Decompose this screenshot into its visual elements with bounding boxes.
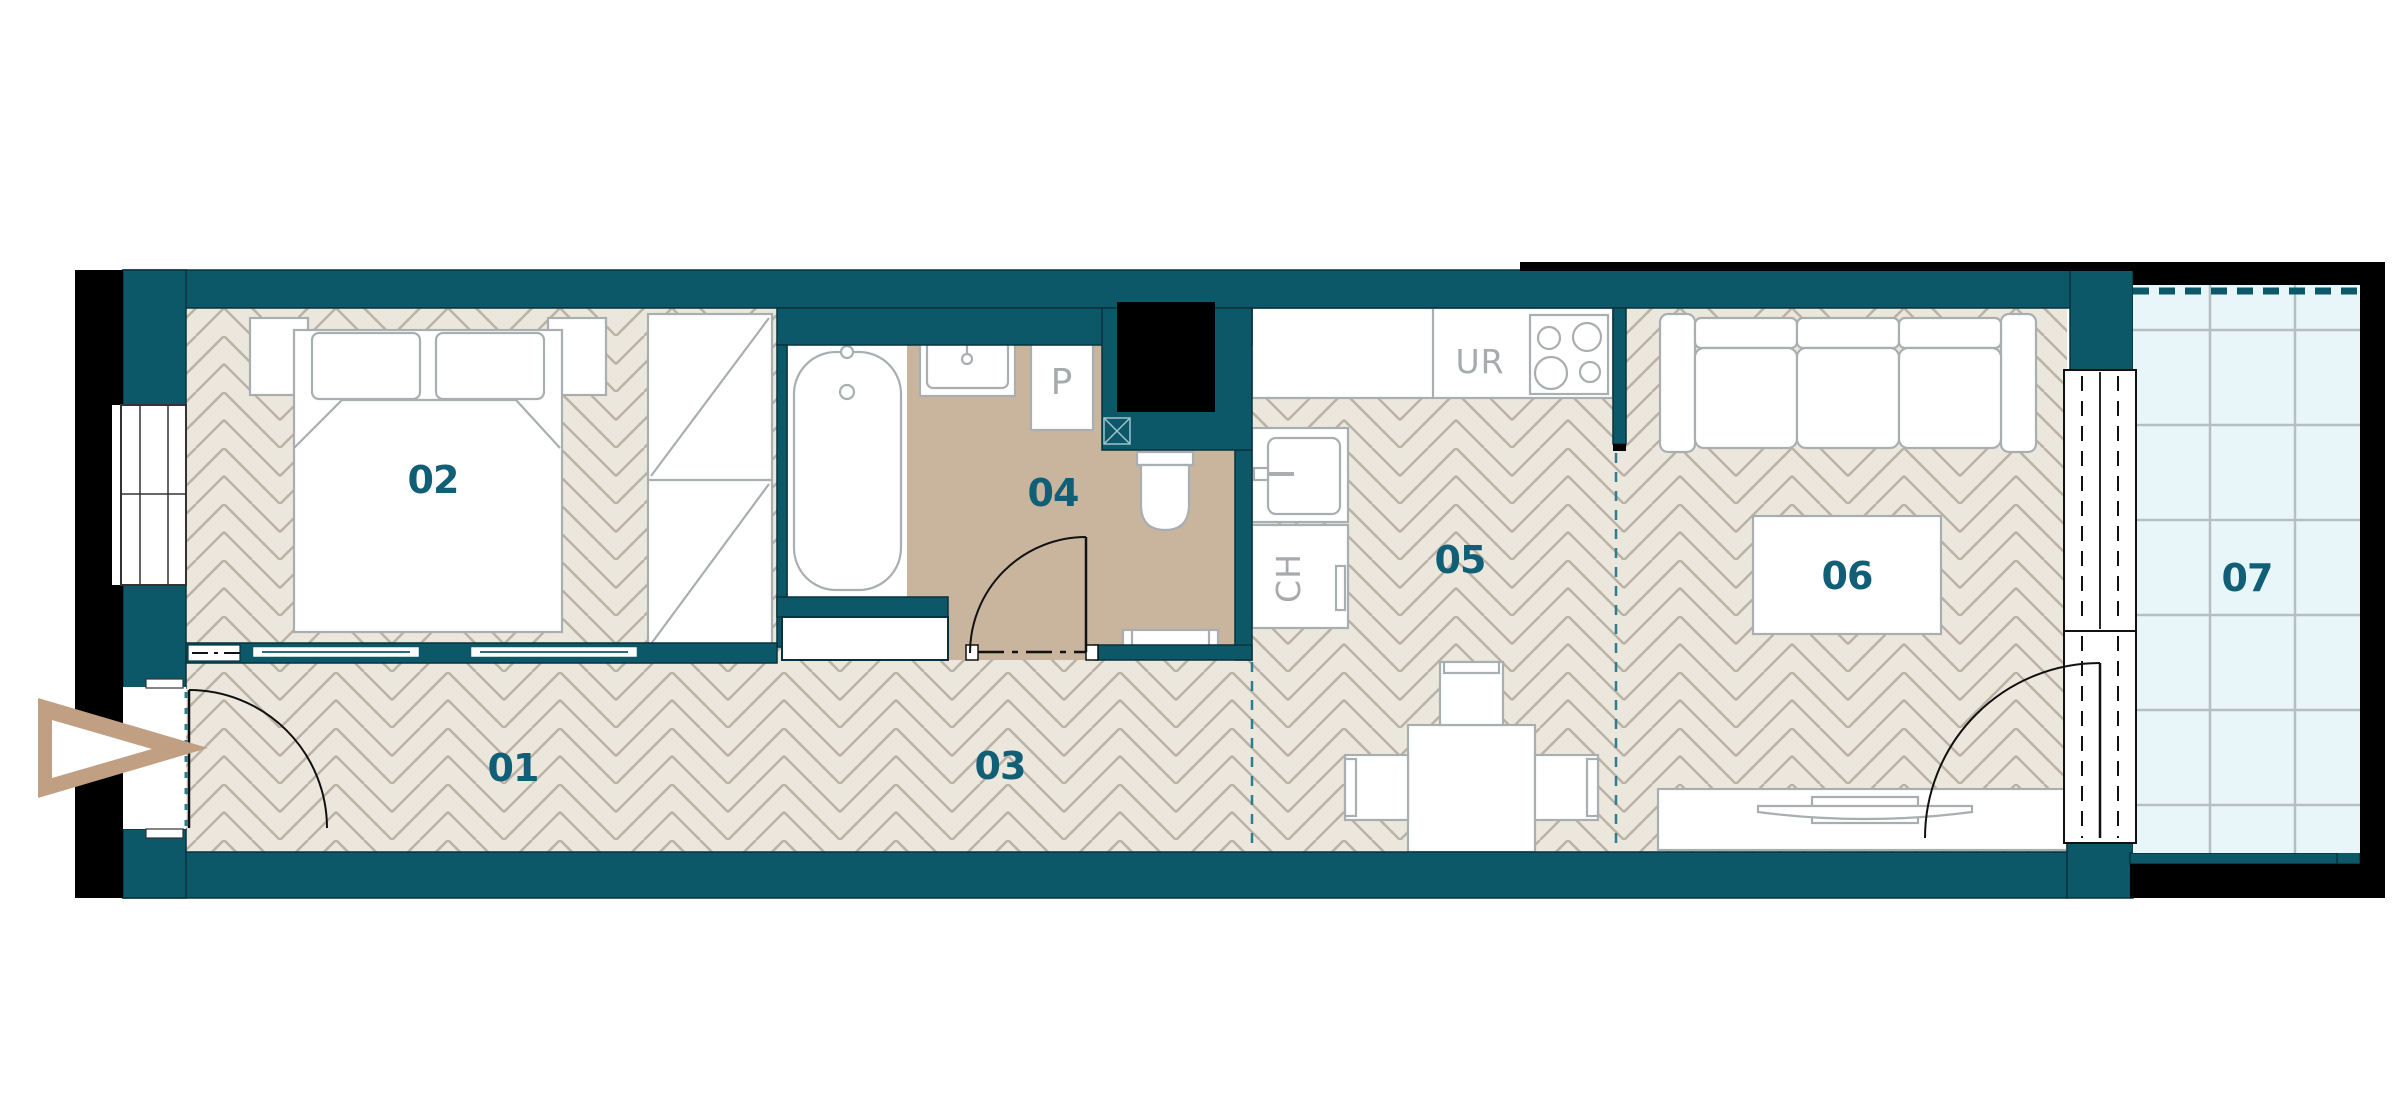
wall-partition-kitchen-living: [1613, 308, 1626, 444]
black-strip-right: [2360, 266, 2385, 898]
black-band-balcony-top: [2133, 266, 2385, 285]
cabinet-label-ur: UR: [1455, 342, 1504, 381]
sofa-seat-cushion: [1797, 348, 1899, 448]
bathroom-shelf: [1123, 630, 1218, 646]
wall-left-lower: [123, 829, 186, 898]
sofa-armrest-left: [1660, 314, 1695, 452]
fridge-handle: [1336, 566, 1345, 610]
room-label-04: 04: [1028, 471, 1079, 515]
wall-balcony-column: [2070, 266, 2133, 370]
bedroom-window: [112, 405, 186, 585]
washer-label-p: P: [1051, 362, 1074, 403]
sofa-armrest-right: [2001, 314, 2036, 452]
black-band-balcony-bottom: [2130, 864, 2385, 898]
dining-table: [1408, 725, 1535, 852]
kitchen-faucet-base: [1254, 468, 1268, 480]
toilet-cistern: [1137, 452, 1193, 465]
room-label-05: 05: [1435, 538, 1486, 582]
dining-chair-left-backrest: [1345, 759, 1356, 816]
bathtub-drain-icon: [840, 385, 854, 399]
sofa-back-cushion: [1797, 318, 1899, 348]
wall-bathroom-bottom-left: [777, 597, 948, 617]
room-label-07: 07: [2222, 556, 2273, 600]
wall-left-upper: [123, 270, 186, 407]
burner-icon: [1535, 357, 1567, 389]
pillow-right: [436, 333, 544, 399]
floor-plan-drawing: 01 02 03 04 05 06 07 UR CH P: [0, 0, 2400, 1120]
burner-icon: [1573, 323, 1601, 351]
toilet-bowl: [1141, 465, 1189, 530]
balcony-window: [2064, 370, 2136, 631]
room-label-03: 03: [975, 744, 1026, 788]
balcony-rim: [2130, 853, 2360, 864]
sofa-seat-cushion: [1899, 348, 2001, 448]
fridge-label-ch: CH: [1269, 553, 1308, 603]
wall-left-middle: [123, 585, 186, 688]
wall-balcony-stub: [2067, 843, 2133, 898]
room-label-01: 01: [488, 746, 539, 790]
floor-plan-page: 01 02 03 04 05 06 07 UR CH P: [0, 0, 2400, 1120]
bathroom-shelf-leg-right: [1209, 630, 1218, 646]
sofa-back-cushion: [1899, 318, 2001, 348]
burner-icon: [1538, 327, 1560, 349]
dining-chair-right-backrest: [1587, 759, 1598, 816]
room-label-06: 06: [1822, 554, 1873, 598]
sofa-back-cushion: [1695, 318, 1797, 348]
wall-bathroom-bottom-right: [1095, 645, 1252, 660]
sofa-seat-cushion: [1695, 348, 1797, 448]
pillow-left: [312, 333, 420, 399]
sink-faucet-knob-icon: [962, 354, 972, 364]
dining-chair-top-backrest: [1444, 662, 1499, 673]
bathtub-faucet-icon: [841, 346, 853, 358]
room-label-02: 02: [408, 458, 459, 502]
shaft-void: [1117, 302, 1215, 412]
bedroom-sliding-window: [188, 645, 638, 661]
hall-niche: [782, 617, 948, 660]
bathroom-shelf-leg-left: [1123, 630, 1132, 646]
shaft-vent-icon: [1104, 418, 1130, 444]
wall-bathroom-right: [1235, 450, 1252, 660]
partition-end-cap: [1613, 444, 1626, 451]
burner-icon: [1580, 362, 1600, 382]
wall-bottom: [123, 852, 2067, 898]
